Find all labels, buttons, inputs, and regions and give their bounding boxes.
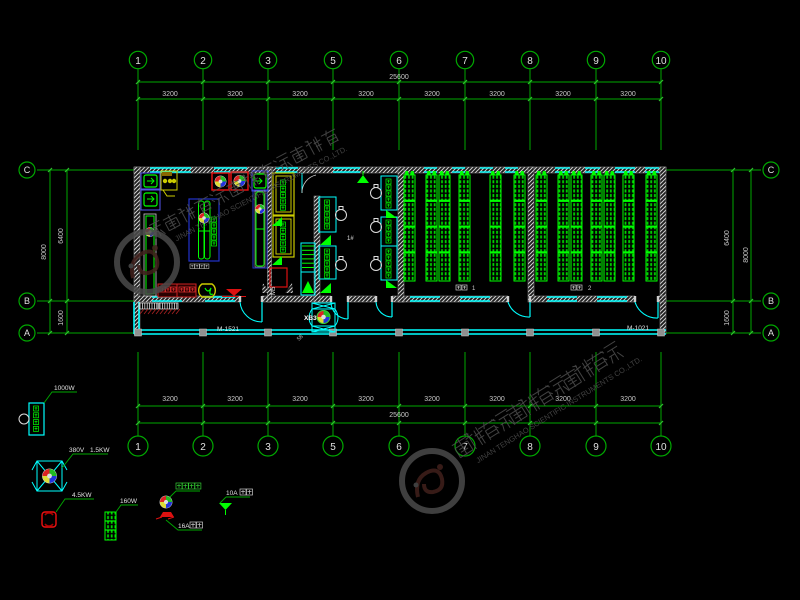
svg-text:8: 8: [527, 442, 533, 453]
svg-text:1600: 1600: [724, 310, 731, 326]
svg-text:1#: 1#: [347, 236, 354, 242]
svg-text:5: 5: [330, 56, 336, 67]
svg-text:M-1021: M-1021: [627, 325, 649, 332]
svg-text:2: 2: [200, 56, 206, 67]
svg-text:16A: 16A: [178, 523, 190, 530]
svg-text:3200: 3200: [620, 91, 636, 98]
svg-text:10A: 10A: [226, 490, 238, 497]
svg-text:B: B: [768, 296, 774, 306]
svg-text:6400: 6400: [58, 228, 65, 244]
svg-text:3200: 3200: [555, 91, 571, 98]
svg-text:3200: 3200: [292, 91, 308, 98]
svg-text:3200: 3200: [358, 396, 374, 403]
svg-text:380V: 380V: [69, 447, 85, 454]
svg-text:8: 8: [527, 56, 533, 67]
svg-text:C: C: [24, 165, 31, 175]
svg-text:2: 2: [200, 442, 206, 453]
svg-text:3200: 3200: [424, 396, 440, 403]
svg-text:3200: 3200: [358, 91, 374, 98]
svg-text:M5: M5: [271, 286, 277, 295]
svg-text:6: 6: [396, 56, 402, 67]
svg-text:M-1521: M-1521: [217, 326, 239, 333]
svg-text:1600: 1600: [58, 310, 65, 326]
svg-text:A: A: [24, 328, 30, 338]
svg-text:9: 9: [593, 56, 599, 67]
svg-text:10: 10: [655, 442, 667, 453]
svg-text:6: 6: [396, 442, 402, 453]
svg-text:3: 3: [265, 56, 271, 67]
svg-text:4.5KW: 4.5KW: [72, 492, 92, 499]
svg-text:1: 1: [135, 442, 141, 453]
svg-text:1: 1: [135, 56, 141, 67]
svg-text:1000W: 1000W: [54, 385, 75, 392]
svg-text:XB3: XB3: [304, 315, 317, 322]
svg-text:1.5KW: 1.5KW: [90, 447, 110, 454]
svg-text:A: A: [768, 328, 774, 338]
svg-text:8000: 8000: [743, 247, 750, 263]
svg-text:3200: 3200: [162, 91, 178, 98]
svg-text:C: C: [768, 165, 775, 175]
svg-text:5: 5: [330, 442, 336, 453]
svg-text:3200: 3200: [424, 91, 440, 98]
svg-text:3200: 3200: [489, 91, 505, 98]
svg-text:25600: 25600: [389, 412, 409, 419]
svg-text:9: 9: [593, 442, 599, 453]
svg-text:160W: 160W: [120, 498, 138, 505]
svg-text:10: 10: [655, 56, 667, 67]
svg-text:3200: 3200: [292, 396, 308, 403]
svg-text:B: B: [24, 296, 30, 306]
svg-text:25600: 25600: [389, 74, 409, 81]
svg-text:3200: 3200: [227, 91, 243, 98]
svg-text:3200: 3200: [227, 396, 243, 403]
svg-text:3200: 3200: [162, 396, 178, 403]
svg-text:8000: 8000: [41, 244, 48, 260]
svg-text:3: 3: [265, 442, 271, 453]
svg-text:7: 7: [462, 56, 468, 67]
svg-text:6400: 6400: [724, 230, 731, 246]
svg-text:3200: 3200: [489, 396, 505, 403]
svg-text:3200: 3200: [620, 396, 636, 403]
